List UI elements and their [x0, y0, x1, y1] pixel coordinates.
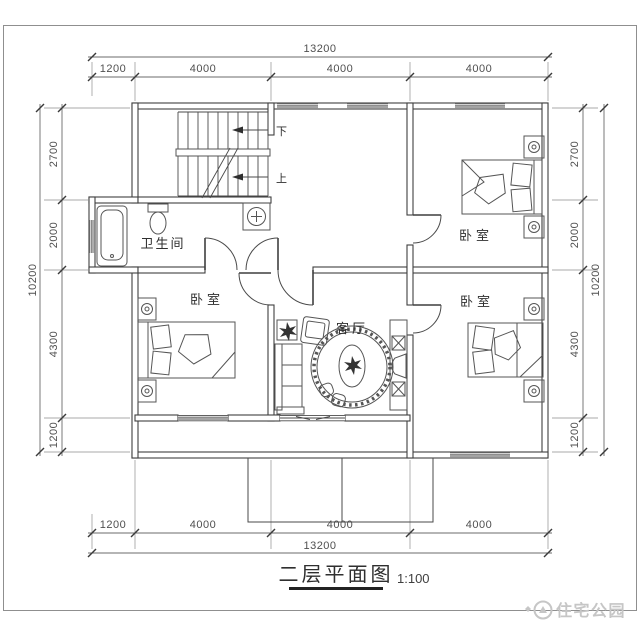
- dim-bottom-seg-4: 4000: [466, 519, 492, 531]
- nightstand-sw-top: [138, 298, 156, 320]
- nightstand-ne-bottom: [524, 216, 544, 238]
- dimension-chain-top: 13200 1200 4000 4000 4000: [88, 43, 552, 81]
- dim-left-seg-1: 2700: [48, 141, 60, 167]
- window-bedroom-ne: [455, 103, 505, 109]
- doors: [205, 215, 441, 333]
- room-label-bedroom-sw: 卧室: [190, 292, 224, 307]
- dim-top-seg-1: 1200: [100, 63, 126, 75]
- title-underline: [289, 587, 383, 590]
- extension-lines: [44, 62, 598, 549]
- floor-plan-sheet: 13200 1200 4000 4000 4000 1200 4000 4000…: [0, 0, 640, 640]
- door-bedroom-se: [413, 305, 441, 333]
- dimension-chain-left: 10200 2700 2000 4300 1200: [27, 104, 66, 456]
- porch-outline: [248, 458, 433, 522]
- dim-right-total: 10200: [590, 263, 602, 296]
- armchair-icon: [300, 316, 329, 345]
- dim-left-total: 10200: [27, 263, 39, 296]
- dim-left-seg-4: 1200: [48, 422, 60, 448]
- door-living: [278, 270, 313, 305]
- stair-down-label: 下: [276, 126, 287, 138]
- room-label-bathroom: 卫生间: [140, 236, 185, 251]
- scale-label: 1:100: [397, 571, 430, 586]
- window-hall-2: [347, 103, 388, 109]
- dim-top-seg-3: 4000: [327, 63, 353, 75]
- toilet-icon: [148, 204, 168, 234]
- nightstand-se-bottom: [524, 380, 544, 402]
- nightstand-se-top: [524, 298, 544, 320]
- dimension-chain-bottom: 1200 4000 4000 4000 13200: [88, 519, 552, 557]
- windows: [89, 103, 510, 458]
- nightstand-ne-top: [524, 136, 544, 158]
- dim-bottom-seg-1: 1200: [100, 519, 126, 531]
- bed-ne-icon: [462, 160, 542, 214]
- bedroom-sw-furniture: [138, 298, 235, 402]
- bathroom-fixtures: [97, 203, 270, 266]
- sofa-icon: [275, 344, 304, 414]
- sink-icon: [243, 203, 270, 230]
- bedroom-ne-furniture: [462, 136, 544, 238]
- dim-left-seg-2: 2000: [48, 222, 60, 248]
- stair-up-arrow: [232, 174, 268, 181]
- bathtub-icon: [97, 206, 127, 266]
- coffee-table-icon: [339, 345, 365, 387]
- door-bedroom-ne: [413, 215, 441, 243]
- title-block: 二层平面图 1:100: [279, 564, 430, 590]
- room-label-living: 客厅: [336, 321, 368, 336]
- dim-top-seg-4: 4000: [466, 63, 492, 75]
- room-label-bedroom-ne: 卧室: [459, 228, 493, 243]
- corner-table-icon: [277, 320, 297, 341]
- dim-bottom-total: 13200: [303, 540, 336, 552]
- dim-right-seg-2: 2000: [569, 222, 581, 248]
- stair-handrail: [176, 149, 270, 156]
- dim-bottom-seg-2: 4000: [190, 519, 216, 531]
- door-bathroom-right: [246, 238, 278, 270]
- window-living-slider: [280, 415, 345, 421]
- dim-left-seg-3: 4300: [48, 331, 60, 357]
- plant-icon: [279, 322, 297, 341]
- dim-right-seg-1: 2700: [569, 141, 581, 167]
- dimension-chain-right: 2700 2000 4300 1200 10200: [569, 104, 608, 456]
- nightstand-sw-bottom: [138, 380, 156, 402]
- page-title: 二层平面图: [279, 564, 394, 586]
- window-hall-1: [277, 103, 318, 109]
- walls: [89, 103, 548, 458]
- dim-top-seg-2: 4000: [190, 63, 216, 75]
- stair-up-label: 上: [276, 172, 287, 185]
- dim-right-seg-3: 4300: [569, 331, 581, 357]
- window-bedroom-se: [450, 452, 510, 458]
- window-bathroom: [89, 220, 95, 253]
- watermark-text: 住宅公园: [556, 601, 626, 620]
- dim-right-seg-4: 1200: [569, 422, 581, 448]
- door-bedroom-sw: [239, 273, 271, 305]
- bedroom-se-furniture: [468, 298, 544, 402]
- window-bedroom-sw: [178, 415, 228, 421]
- watermark-spark-icon: [525, 606, 531, 612]
- door-bathroom-left: [205, 238, 237, 270]
- dim-top-total: 13200: [303, 43, 336, 55]
- room-label-bedroom-se: 卧室: [460, 294, 494, 309]
- stair-down-arrow: [232, 127, 268, 134]
- tv-icon: [392, 354, 406, 378]
- dim-bottom-seg-3: 4000: [327, 519, 353, 531]
- bed-sw-icon: [138, 322, 235, 378]
- bed-se-icon: [468, 323, 543, 377]
